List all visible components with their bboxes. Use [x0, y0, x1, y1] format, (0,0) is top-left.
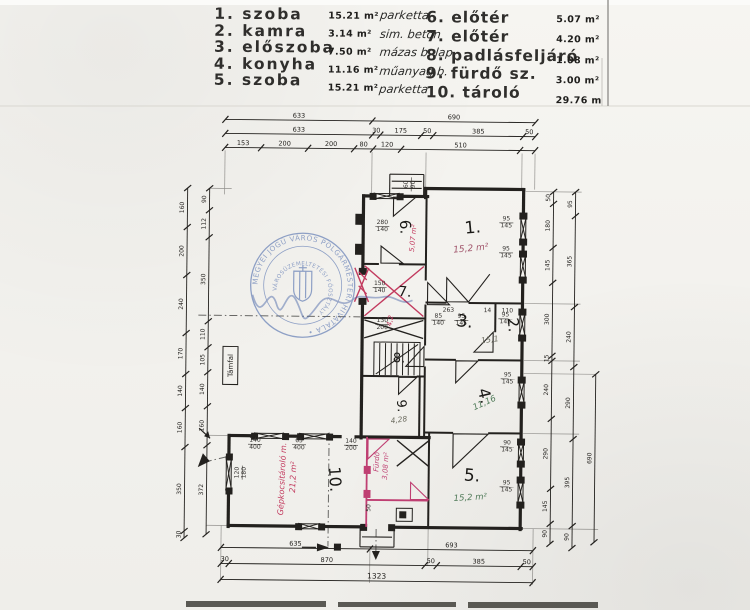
flue-symbol: [334, 508, 412, 552]
dim-value: 145: [544, 259, 551, 271]
dim-line: [594, 374, 596, 542]
dim-value: 372: [198, 484, 205, 496]
opening-dim: 95: [504, 371, 512, 378]
dim-value: 290: [542, 448, 549, 460]
dim-value: 385: [473, 558, 486, 566]
opening-dim: 140: [376, 226, 388, 233]
dim-value: 170: [177, 348, 184, 360]
partition-wall: [419, 376, 420, 437]
dim-value: 50: [523, 558, 531, 566]
opening-dim: 14: [484, 307, 492, 314]
witness-lines: [206, 150, 602, 585]
room-number: 10.: [325, 466, 345, 493]
room-number: 7.: [398, 284, 413, 301]
wall: [426, 189, 524, 190]
tamfal-label: Támfal: [223, 346, 238, 384]
door-swing-icon: [381, 246, 403, 263]
dim-value: 180: [545, 220, 552, 232]
new-wall-pier: [363, 490, 370, 498]
opening-dim: 263: [443, 307, 455, 314]
pier: [355, 244, 362, 255]
room-number: 3.: [456, 311, 474, 333]
dim-value: 30: [372, 126, 380, 134]
scanned-floorplan-page: 1. szoba15.21 m²parketta2. kamra3.14 m²s…: [0, 0, 750, 610]
wall: [390, 527, 521, 528]
opening-dim: 95: [503, 479, 511, 486]
dim-value: 30: [176, 530, 183, 538]
witness-line: [533, 529, 534, 585]
new-wall-pier: [364, 466, 371, 474]
floor-plan-drawing: Támfal6336906333017550385501532002008012…: [0, 0, 750, 610]
dim-value: 140: [177, 385, 184, 397]
scan-artifacts: [0, 0, 750, 608]
dim-value: 95: [567, 200, 574, 208]
dim-value: 200: [178, 245, 185, 257]
partition-wall: [426, 198, 427, 281]
dim-value: 110: [200, 328, 207, 340]
room-number: 1.: [464, 217, 482, 238]
dim-value: 633: [293, 126, 306, 134]
dim-value: 290: [565, 397, 572, 409]
opening-dim: 95: [503, 215, 511, 222]
opening-dim: 145: [502, 378, 514, 385]
dim-value: 1323: [367, 571, 386, 580]
handwritten-note: 4,28: [390, 414, 408, 425]
dim-line: [225, 119, 535, 122]
opening-dim: 145: [501, 222, 513, 229]
dim-line: [221, 547, 533, 550]
opening-dim: 145: [501, 446, 513, 453]
dim-line: [550, 192, 554, 544]
room-number: 8.: [392, 351, 405, 367]
handwritten-note: Fürdő: [371, 451, 381, 472]
dim-value: 112: [201, 218, 208, 230]
partition-wall: [428, 433, 429, 528]
handwritten-note: 4,2: [385, 314, 395, 327]
dim-value: 105: [199, 354, 206, 366]
pier: [355, 214, 362, 225]
handwritten-note: 15,2 m²: [453, 242, 489, 255]
thin-line: [469, 274, 490, 302]
opening-dim: 200: [345, 445, 357, 452]
shield: [294, 271, 312, 301]
door-swing-icon: [399, 377, 417, 394]
opening-dim: 95: [502, 245, 510, 252]
dim-value: 240: [178, 298, 185, 310]
new-wall: [366, 437, 367, 527]
opening-dim: 400: [249, 444, 261, 451]
opening-dim: 145: [501, 486, 513, 493]
dim-line: [184, 188, 188, 538]
scan-edge-top: [0, 0, 750, 5]
dim-value: 635: [289, 540, 302, 548]
pier: [358, 298, 366, 305]
opening-dim: 140: [374, 287, 386, 294]
handwritten-note: 15,2 m²: [453, 492, 487, 504]
pier: [388, 524, 395, 531]
witness-line: [524, 374, 596, 375]
dim-line: [572, 192, 576, 548]
opening-dim: 85: [435, 313, 443, 320]
opening-dim: 180: [241, 467, 248, 479]
dim-value: 80: [359, 140, 367, 148]
tamfal-text: Támfal: [227, 354, 235, 378]
opening-dim: 65: [295, 437, 303, 444]
door-swing-icon: [453, 434, 488, 468]
opening-dim: 90: [503, 439, 511, 446]
dim-value: 160: [199, 420, 206, 432]
door-swing-icon: [456, 361, 478, 383]
dim-value: 365: [566, 256, 573, 268]
arrow-head-icon: [317, 543, 329, 551]
opening-dim: 50: [365, 504, 372, 512]
arrow-head-icon: [198, 453, 210, 467]
handwritten-note: 5,07 m²: [408, 224, 419, 252]
dim-value: 870: [321, 556, 334, 564]
dim-line: [221, 563, 533, 566]
opening-dim: 90: [410, 180, 417, 188]
dim-value: 160: [177, 422, 184, 434]
opening-dim: 145: [500, 252, 512, 259]
dim-value: 300: [544, 313, 551, 325]
dim-value: 50: [423, 127, 431, 135]
dim-value: 50: [545, 194, 552, 202]
dim-value: 633: [293, 112, 306, 120]
room-number: 9.: [393, 399, 409, 413]
coat-of-arms-icon: [294, 265, 312, 301]
room-number: 5.: [463, 465, 481, 486]
marker-square: [334, 544, 341, 551]
dim-value: 350: [200, 273, 207, 285]
dim-value: 200: [325, 140, 338, 148]
dim-value: 175: [395, 127, 408, 135]
dim-value: 50: [525, 128, 533, 136]
handwritten-note: 3,08 m²: [381, 452, 391, 480]
dimension-chains: 6336906333017550385501532002008012051063…: [175, 110, 602, 586]
dim-value: 153: [237, 139, 250, 147]
wall: [361, 302, 362, 438]
wall: [228, 525, 298, 526]
scan-edge-bottom: [338, 602, 456, 607]
dim-value: 145: [542, 500, 549, 512]
door-swing-icon: [447, 278, 469, 302]
dim-value: 690: [586, 452, 593, 464]
flue-fill: [399, 511, 406, 518]
scan-edge-bottom: [468, 602, 598, 608]
dim-value: 50: [427, 557, 435, 565]
handwritten-note: Gépkocsitároló m.: [275, 442, 288, 515]
dim-value: 160: [179, 202, 186, 214]
dim-value: 120: [381, 141, 394, 149]
outer-walls: [228, 186, 525, 529]
dim-value: 90: [201, 195, 208, 203]
dim-value: 690: [448, 113, 461, 121]
dim-value: 90: [564, 533, 571, 541]
dim-value: 90: [542, 530, 549, 538]
room-number: 2.: [504, 317, 523, 333]
witness-line: [522, 529, 598, 530]
handwritten-note: 15,1: [480, 334, 499, 345]
arrow-head-icon: [372, 551, 380, 560]
wall: [363, 196, 364, 272]
dim-value: 15: [543, 354, 550, 362]
dim-value: 385: [472, 128, 485, 136]
dim-value: 240: [566, 331, 573, 343]
witness-line: [221, 525, 222, 581]
plan-root: Támfal6336906333017550385501532002008012…: [175, 110, 602, 586]
opening-dim: 140: [433, 320, 445, 327]
scan-edge-bottom: [186, 601, 326, 607]
dim-value: 200: [278, 139, 291, 147]
opening-dim: 400: [293, 444, 305, 451]
door-swing-icon: [410, 482, 428, 499]
dim-value: 140: [199, 383, 206, 395]
new-wall: [366, 500, 428, 501]
opening-dim: 60: [403, 180, 410, 188]
dim-value: 350: [176, 483, 183, 495]
dim-value: 30: [221, 555, 229, 563]
dim-value: 510: [454, 141, 467, 149]
dim-value: 395: [564, 477, 571, 489]
dim-value: 693: [445, 541, 458, 549]
dim-value: 240: [543, 384, 550, 396]
handwritten-note: 21,2 m²: [288, 460, 298, 493]
